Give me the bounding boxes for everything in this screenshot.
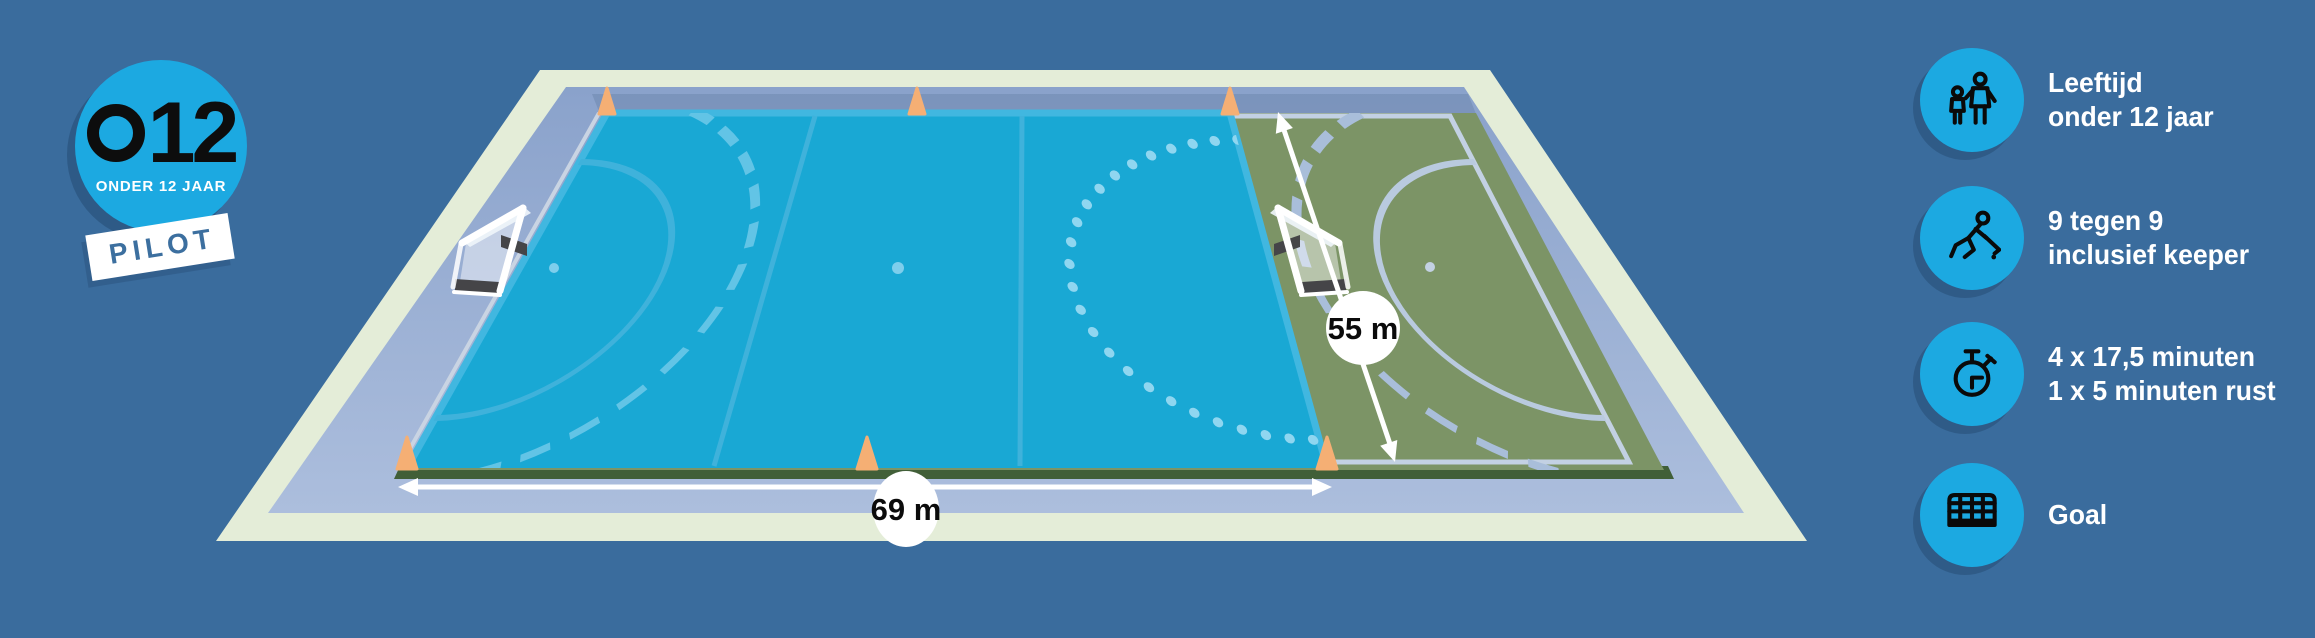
hockey-player-icon (1920, 186, 2024, 290)
letter-o-ring (87, 104, 145, 162)
legend-line: inclusief keeper (2048, 238, 2249, 272)
legend-item-time-text: 4 x 17,5 minuten 1 x 5 minuten rust (2048, 340, 2276, 408)
left-penalty-spot (549, 263, 559, 273)
full-field-penalty-spot (1425, 262, 1435, 272)
length-measurement-label: 69 m (871, 492, 942, 527)
legend-line: 4 x 17,5 minuten (2048, 340, 2276, 374)
infographic-canvas: 69 m 55 m 12 ONDER 12 JAAR PILOT (0, 0, 2315, 638)
legend-line: 1 x 5 minuten rust (2048, 374, 2276, 408)
width-measurement-label: 55 m (1328, 311, 1399, 346)
half-line (1020, 116, 1022, 466)
legend-line: Goal (2048, 498, 2107, 532)
age-code: 12 (87, 98, 236, 168)
stopwatch-icon (1920, 322, 2024, 426)
age-badge: 12 ONDER 12 JAAR (75, 60, 247, 232)
legend-item-players: 9 tegen 9 inclusief keeper (1920, 186, 2260, 290)
adult-child-icon (1920, 48, 2024, 152)
legend-item-time: 4 x 17,5 minuten 1 x 5 minuten rust (1920, 322, 2288, 426)
legend-line: onder 12 jaar (2048, 100, 2214, 134)
legend-line: 9 tegen 9 (2048, 204, 2249, 238)
legend-item-age: Leeftijd onder 12 jaar (1920, 48, 2222, 152)
legend-item-goal: Goal (1920, 463, 2110, 567)
legend-item-age-text: Leeftijd onder 12 jaar (2048, 66, 2214, 134)
center-spot (892, 262, 904, 274)
legend-item-players-text: 9 tegen 9 inclusief keeper (2048, 204, 2249, 272)
age-code-number: 12 (148, 101, 236, 165)
legend-line: Leeftijd (2048, 66, 2214, 100)
goal-net-icon (1920, 463, 2024, 567)
age-badge-subtitle: ONDER 12 JAAR (96, 178, 226, 195)
width-measurement-badge: 55 m (1326, 291, 1400, 365)
legend-item-goal-text: Goal (2048, 498, 2107, 532)
